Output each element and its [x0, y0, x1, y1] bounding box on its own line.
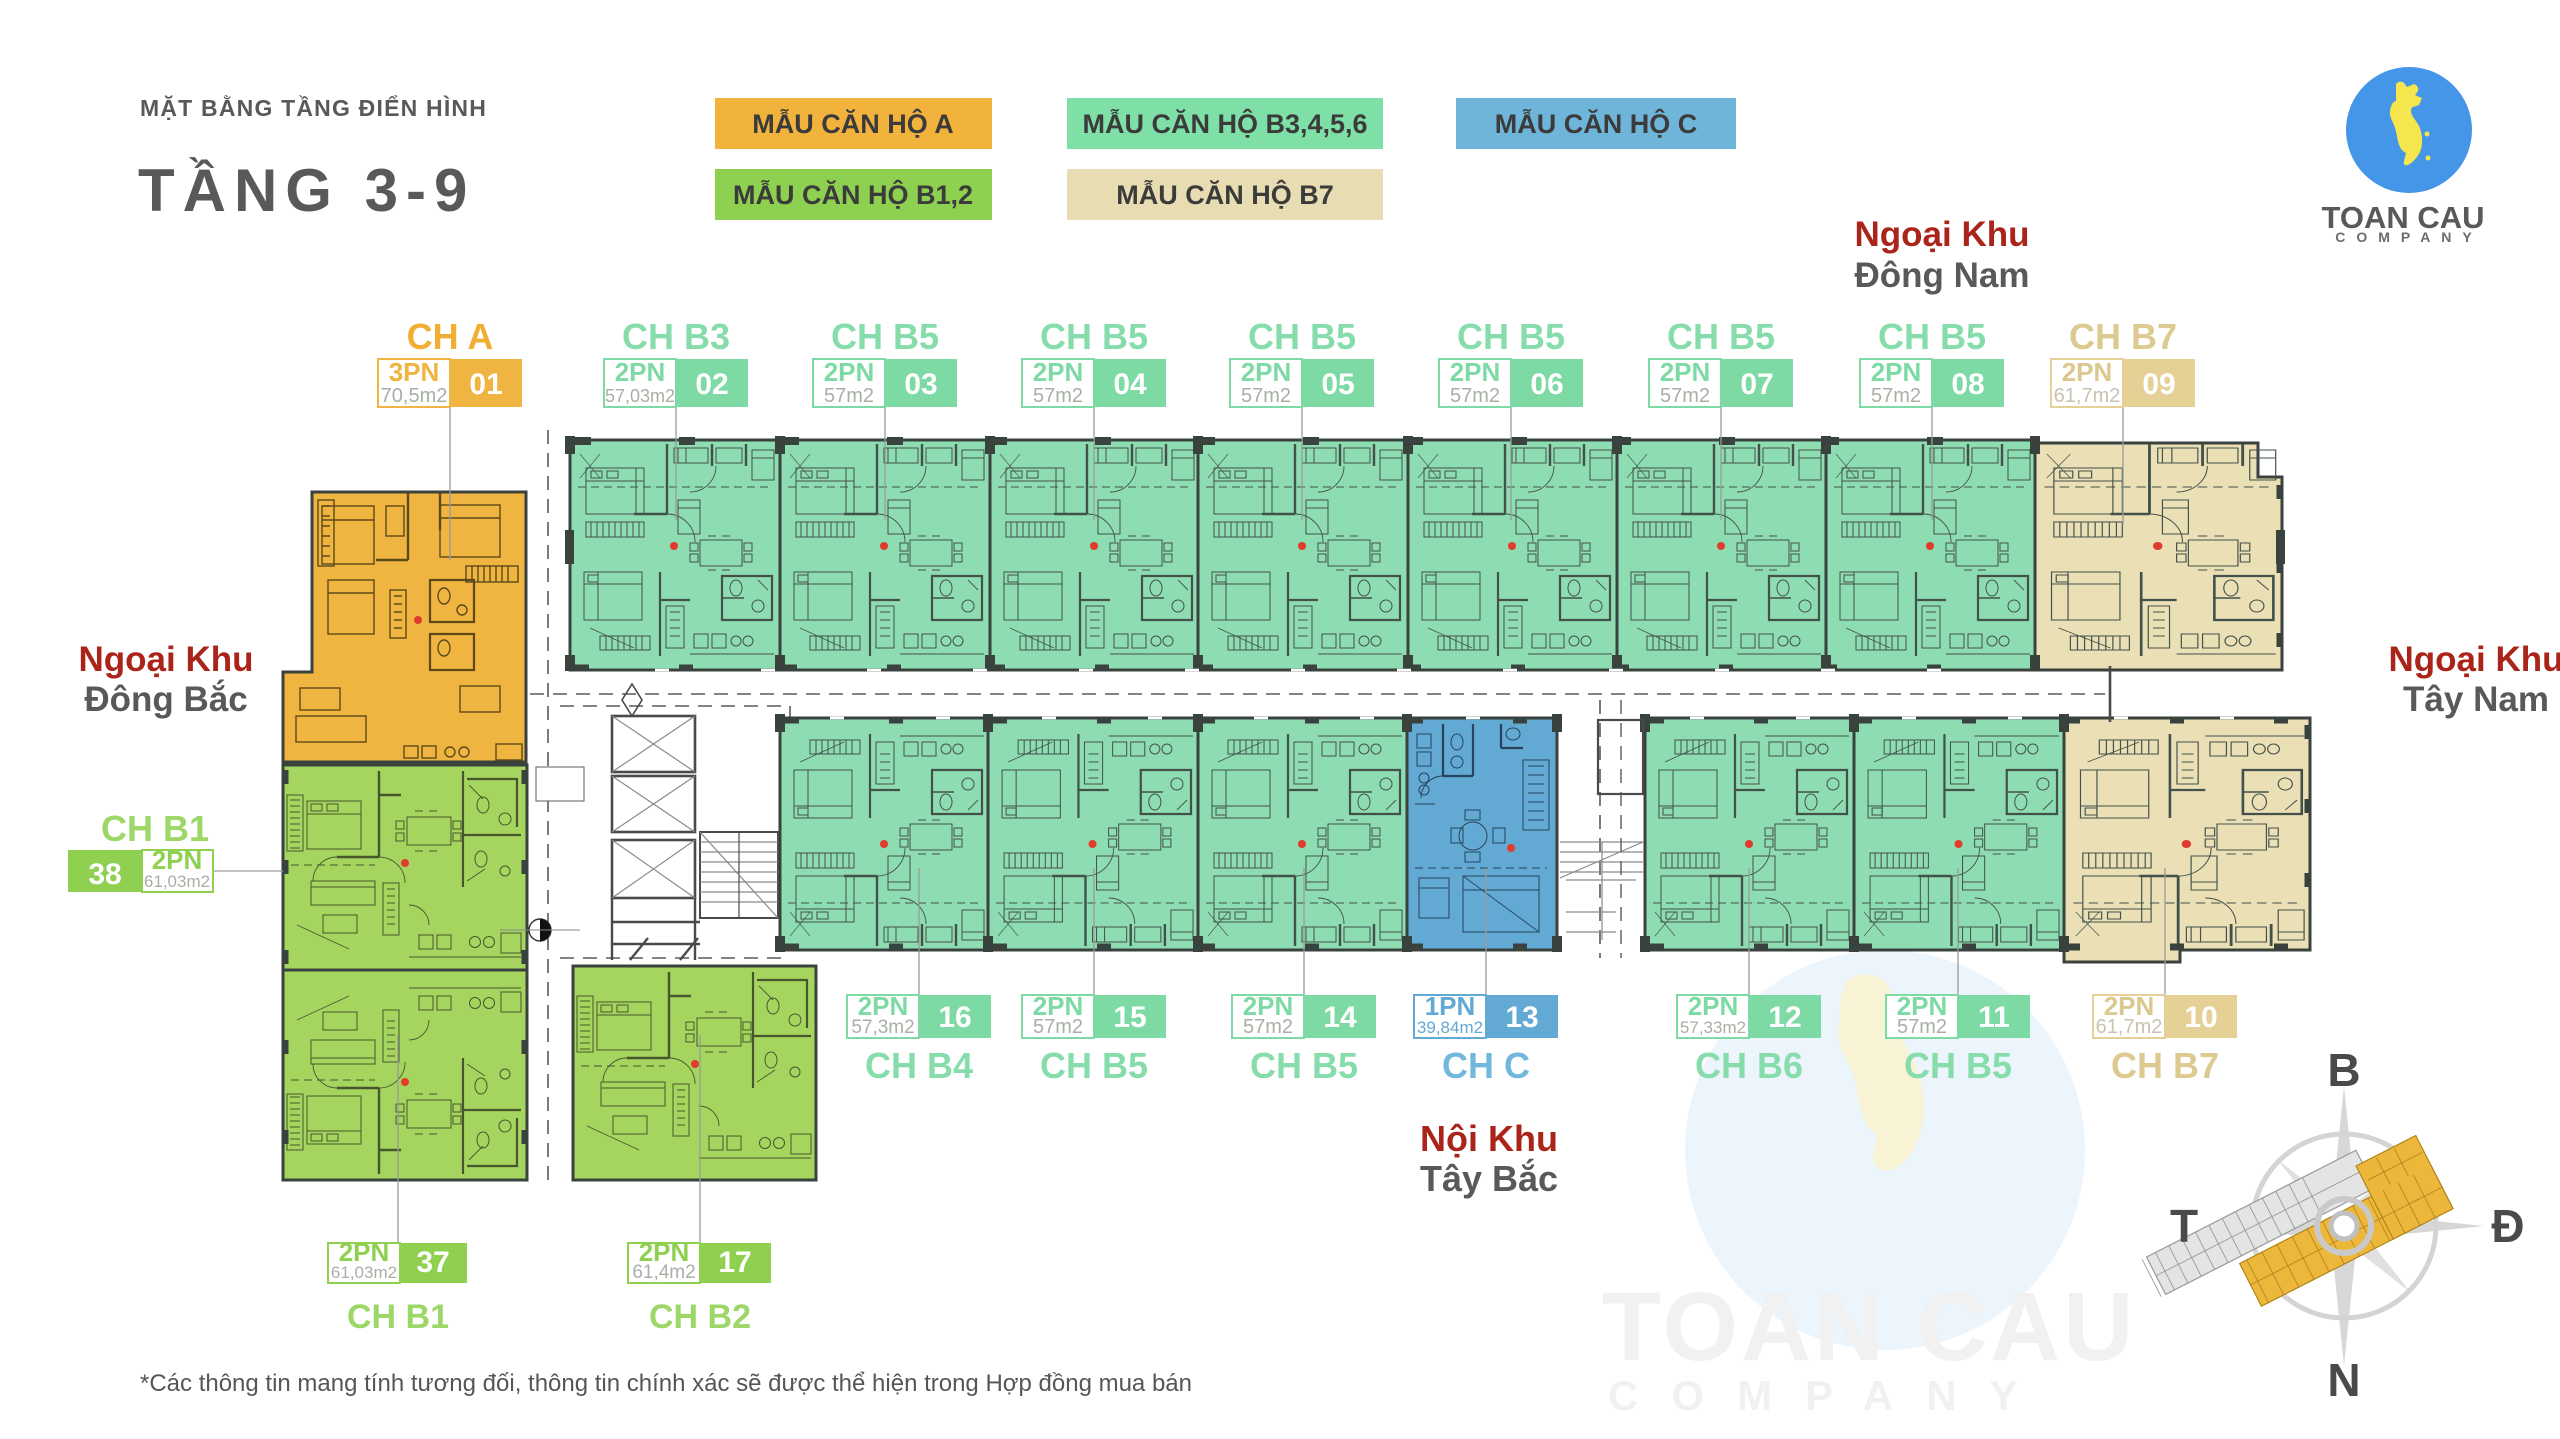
svg-text:2PN: 2PN: [824, 357, 875, 387]
svg-text:CH B5: CH B5: [1667, 316, 1775, 357]
svg-text:61,7m2: 61,7m2: [2096, 1016, 2163, 1038]
svg-text:CH B5: CH B5: [1040, 316, 1148, 357]
svg-text:2PN: 2PN: [1241, 357, 1292, 387]
svg-text:N: N: [2327, 1354, 2360, 1406]
svg-text:16: 16: [938, 1001, 971, 1034]
svg-text:06: 06: [1530, 368, 1563, 401]
svg-text:Ngoại Khu: Ngoại Khu: [79, 640, 254, 679]
svg-text:T: T: [2170, 1200, 2198, 1252]
svg-text:CH B5: CH B5: [1248, 316, 1356, 357]
svg-text:Đông Bắc: Đông Bắc: [84, 679, 247, 719]
svg-text:3PN: 3PN: [389, 357, 440, 387]
svg-text:57,3m2: 57,3m2: [851, 1017, 914, 1038]
svg-text:57m2: 57m2: [1660, 385, 1710, 407]
svg-text:CH B5: CH B5: [1250, 1045, 1358, 1086]
svg-text:39,84m2: 39,84m2: [1417, 1018, 1483, 1037]
svg-text:CH C: CH C: [1442, 1045, 1530, 1086]
svg-text:08: 08: [1951, 368, 1984, 401]
svg-text:CH B2: CH B2: [649, 1298, 751, 1336]
svg-text:CH B7: CH B7: [2069, 316, 2177, 357]
svg-text:CH B1: CH B1: [101, 808, 209, 849]
svg-text:CH B5: CH B5: [1457, 316, 1565, 357]
svg-text:70,5m2: 70,5m2: [381, 385, 448, 407]
svg-text:02: 02: [695, 368, 728, 401]
svg-text:CH B5: CH B5: [1878, 316, 1986, 357]
svg-text:COMPANY: COMPANY: [1608, 1372, 2051, 1419]
svg-text:Ngoại Khu: Ngoại Khu: [2389, 640, 2560, 679]
svg-text:57m2: 57m2: [1871, 385, 1921, 407]
svg-text:Ngoại Khu: Ngoại Khu: [1855, 215, 2030, 254]
svg-text:13: 13: [1505, 1001, 1538, 1034]
svg-text:1PN: 1PN: [1425, 991, 1476, 1021]
svg-text:Đông Nam: Đông Nam: [1855, 256, 2030, 295]
svg-text:17: 17: [718, 1246, 751, 1279]
svg-text:MẶT BẰNG TẦNG ĐIỂN HÌNH: MẶT BẰNG TẦNG ĐIỂN HÌNH: [140, 94, 487, 121]
svg-text:CH B6: CH B6: [1695, 1045, 1803, 1086]
svg-text:15: 15: [1113, 1001, 1146, 1034]
svg-text:38: 38: [88, 858, 121, 891]
svg-text:09: 09: [2142, 368, 2175, 401]
svg-text:03: 03: [904, 368, 937, 401]
svg-text:11: 11: [1978, 1001, 2010, 1034]
svg-text:2PN: 2PN: [152, 845, 203, 875]
svg-text:37: 37: [416, 1246, 449, 1279]
svg-text:CH A: CH A: [407, 316, 494, 357]
svg-text:57m2: 57m2: [1033, 1016, 1083, 1038]
svg-text:COMPANY: COMPANY: [2335, 229, 2483, 245]
svg-text:14: 14: [1323, 1001, 1357, 1034]
svg-text:Nội Khu: Nội Khu: [1420, 1118, 1558, 1159]
svg-text:57m2: 57m2: [1033, 385, 1083, 407]
svg-text:61,7m2: 61,7m2: [2054, 385, 2121, 407]
svg-text:57m2: 57m2: [1897, 1016, 1947, 1038]
svg-text:61,03m2: 61,03m2: [144, 872, 210, 891]
svg-text:*Các thông tin mang tính tương: *Các thông tin mang tính tương đối, thôn…: [140, 1370, 1192, 1397]
svg-text:2PN: 2PN: [1450, 357, 1501, 387]
svg-text:Đ: Đ: [2491, 1200, 2524, 1252]
svg-text:CH B1: CH B1: [347, 1298, 449, 1336]
svg-text:MẪU CĂN HỘ B1,2: MẪU CĂN HỘ B1,2: [733, 179, 973, 210]
svg-text:MẪU CĂN HỘ A: MẪU CĂN HỘ A: [752, 108, 954, 139]
svg-text:Tây Nam: Tây Nam: [2403, 680, 2549, 719]
svg-text:61,03m2: 61,03m2: [331, 1263, 397, 1282]
svg-text:CH B5: CH B5: [1904, 1045, 2012, 1086]
svg-text:10: 10: [2184, 1001, 2217, 1034]
svg-text:04: 04: [1113, 368, 1147, 401]
svg-text:57m2: 57m2: [1243, 1016, 1293, 1038]
svg-text:57m2: 57m2: [1241, 385, 1291, 407]
svg-text:MẪU CĂN HỘ B7: MẪU CĂN HỘ B7: [1116, 179, 1334, 210]
svg-text:TẦNG 3-9: TẦNG 3-9: [138, 157, 475, 224]
svg-text:CH B5: CH B5: [831, 316, 939, 357]
svg-text:CH B7: CH B7: [2111, 1045, 2219, 1086]
svg-text:2PN: 2PN: [2062, 357, 2113, 387]
svg-text:CH B5: CH B5: [1040, 1045, 1148, 1086]
svg-text:57,03m2: 57,03m2: [605, 386, 675, 406]
svg-text:57m2: 57m2: [824, 385, 874, 407]
svg-text:B: B: [2327, 1044, 2360, 1096]
svg-text:CH B3: CH B3: [622, 316, 730, 357]
svg-text:2PN: 2PN: [1871, 357, 1922, 387]
svg-text:TOAN CAU: TOAN CAU: [1602, 1272, 2136, 1381]
svg-text:CH B4: CH B4: [865, 1045, 973, 1086]
svg-text:MẪU CĂN HỘ B3,4,5,6: MẪU CĂN HỘ B3,4,5,6: [1082, 108, 1367, 139]
svg-text:07: 07: [1740, 368, 1773, 401]
svg-text:12: 12: [1768, 1001, 1801, 1034]
svg-text:2PN: 2PN: [1688, 991, 1739, 1021]
svg-text:61,4m2: 61,4m2: [632, 1262, 695, 1283]
svg-text:2PN: 2PN: [1033, 357, 1084, 387]
svg-text:01: 01: [469, 368, 502, 401]
svg-text:Tây Bắc: Tây Bắc: [1420, 1157, 1558, 1199]
svg-text:2PN: 2PN: [1660, 357, 1711, 387]
svg-text:MẪU CĂN HỘ C: MẪU CĂN HỘ C: [1495, 108, 1698, 139]
svg-text:05: 05: [1321, 368, 1354, 401]
svg-text:2PN: 2PN: [615, 357, 666, 387]
svg-text:57,33m2: 57,33m2: [1680, 1018, 1746, 1037]
svg-text:57m2: 57m2: [1450, 385, 1500, 407]
